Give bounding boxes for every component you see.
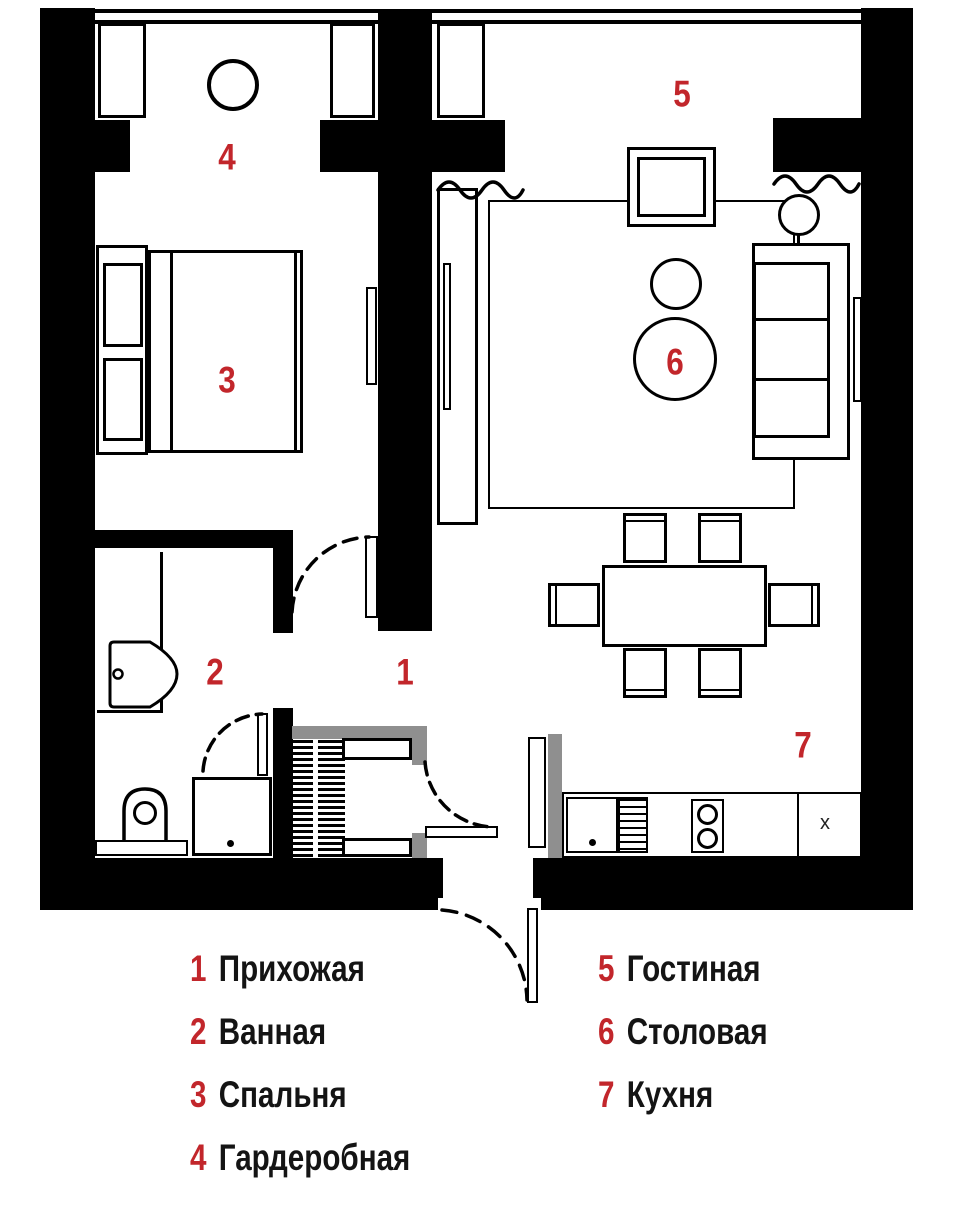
- legend-item-1: 1Прихожая: [190, 947, 365, 991]
- wall-stub-living-right: [773, 118, 861, 172]
- legend-number: 7: [598, 1073, 620, 1117]
- dining-table-icon: [602, 565, 767, 647]
- wall-bottom-left: [40, 858, 443, 910]
- legend-label: Гостиная: [627, 948, 761, 989]
- opening-squiggle-right: [774, 176, 859, 192]
- legend-item-5: 5Гостиная: [598, 947, 761, 991]
- toilet-plinth: [95, 840, 188, 856]
- room-marker-dining: 6: [666, 344, 683, 381]
- bedroom-door-leaf: [365, 536, 378, 618]
- dining-chair-bottom-1: [623, 648, 667, 698]
- entry-door-leaf: [527, 908, 538, 1003]
- wall-stub-wardrobe-right: [320, 120, 378, 172]
- legend-number: 2: [190, 1010, 212, 1054]
- wall-bedroom-bottom: [95, 530, 293, 548]
- dining-chair-left: [548, 583, 600, 627]
- chair-back-line: [626, 520, 664, 522]
- wall-center-vertical: [378, 10, 432, 631]
- room-marker-kitchen: 7: [794, 727, 811, 764]
- sink-icon: [110, 642, 177, 707]
- dining-chair-right: [768, 583, 820, 627]
- sink-faucet-dot: [114, 670, 123, 679]
- bedroom-door-arc: [292, 537, 369, 612]
- wardrobe-hanger-hatch-2: [318, 740, 345, 858]
- bathroom-door-leaf: [257, 713, 268, 776]
- bathroom-door-arc: [203, 714, 262, 771]
- legend-number: 1: [190, 947, 212, 991]
- wall-top-outer: [40, 9, 913, 13]
- entry-jamb-left: [438, 898, 447, 910]
- legend-item-7: 7Кухня: [598, 1073, 713, 1117]
- sofa-cushion-divider-2: [756, 378, 828, 381]
- wall-left: [40, 8, 95, 910]
- wall-stub-living-left: [432, 120, 505, 172]
- dining-chair-top-1: [623, 513, 667, 563]
- dining-chair-top-2: [698, 513, 742, 563]
- bed-foot-line: [294, 252, 297, 451]
- legend-label: Ванная: [219, 1011, 326, 1052]
- tv-stand-inner: [637, 157, 706, 217]
- room-marker-bathroom: 2: [206, 654, 223, 691]
- room-marker-living: 5: [673, 76, 690, 113]
- washing-machine-dot: [227, 840, 234, 847]
- hob-burner-1: [697, 804, 718, 825]
- living-closet-top: [437, 23, 485, 118]
- closet-door-arc: [425, 762, 494, 827]
- wall-right: [861, 8, 913, 910]
- legend-number: 6: [598, 1010, 620, 1054]
- legend-number: 4: [190, 1136, 212, 1180]
- floor-lamp-icon: [778, 194, 820, 236]
- wardrobe-closet-left: [98, 23, 146, 118]
- kitchen-unit-x-label: x: [820, 812, 830, 835]
- hall-closet-frame-right-upper: [412, 726, 427, 765]
- counter-divider-line: [797, 794, 799, 856]
- pouf-icon: [207, 59, 259, 111]
- sink-drainer: [618, 797, 648, 853]
- room-marker-hallway: 1: [396, 654, 413, 691]
- room-marker-bedroom: 3: [218, 362, 235, 399]
- toilet-bowl-circle: [135, 803, 156, 824]
- toilet-icon: [124, 789, 166, 840]
- bath-alcove-line-horizontal: [97, 710, 163, 713]
- wall-stub-wardrobe-left: [95, 120, 130, 172]
- legend-label: Столовая: [627, 1011, 768, 1052]
- legend-item-3: 3Спальня: [190, 1073, 347, 1117]
- coffee-table-small: [650, 258, 702, 310]
- chair-back-line: [811, 586, 813, 624]
- legend-label: Гардеробная: [219, 1137, 411, 1178]
- sofa-cushion-divider-1: [756, 318, 828, 321]
- nightstand-top: [103, 263, 143, 347]
- kitchen-partition-gray: [548, 734, 562, 858]
- wardrobe-hanger-hatch-1: [293, 740, 313, 858]
- legend-number: 5: [598, 947, 620, 991]
- legend-item-6: 6Столовая: [598, 1010, 768, 1054]
- sofa-cushions: [753, 262, 830, 438]
- cabinet-handle-line: [443, 263, 451, 410]
- wall-bottom-right: [533, 858, 913, 910]
- hall-closet-shelf-top: [342, 738, 412, 760]
- legend-label: Кухня: [627, 1074, 714, 1115]
- wardrobe-closet-right: [330, 23, 375, 118]
- nightstand-bottom: [103, 358, 143, 441]
- chair-back-line: [555, 586, 557, 624]
- right-wall-radiator: [853, 297, 862, 402]
- bath-alcove-line-vertical: [160, 552, 163, 713]
- chair-back-line: [701, 689, 739, 691]
- legend-label: Прихожая: [219, 948, 365, 989]
- legend-number: 3: [190, 1073, 212, 1117]
- chair-back-line: [626, 689, 664, 691]
- hall-closet-door-leaf: [425, 826, 498, 838]
- legend-item-2: 2Ванная: [190, 1010, 326, 1054]
- hall-closet-shelf-bottom: [342, 838, 412, 857]
- legend-label: Спальня: [219, 1074, 347, 1115]
- entry-door-arc: [442, 910, 527, 1000]
- legend-item-4: 4Гардеробная: [190, 1136, 410, 1180]
- room-marker-wardrobe: 4: [218, 139, 235, 176]
- bed-pillow-line: [170, 252, 173, 451]
- sink-faucet-dot: [589, 839, 596, 846]
- wall-hall-corner: [273, 548, 293, 633]
- wall-bathroom-stub: [273, 708, 293, 858]
- dining-chair-bottom-2: [698, 648, 742, 698]
- floor-plan: x 1 2 3 4 5 6 7 1Прихожая 2Ванная 3Спаль…: [0, 0, 960, 1215]
- chair-back-line: [701, 520, 739, 522]
- bedroom-wall-mirror: [366, 287, 377, 385]
- kitchen-partition-panel: [528, 737, 546, 848]
- hob-burner-2: [697, 828, 718, 849]
